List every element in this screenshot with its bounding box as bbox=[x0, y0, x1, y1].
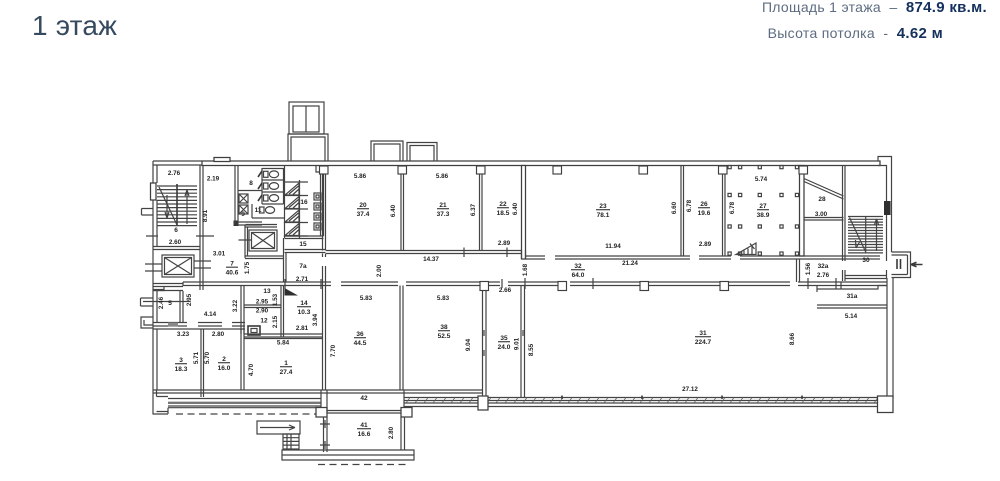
svg-text:16.6: 16.6 bbox=[358, 431, 371, 438]
svg-text:3.01: 3.01 bbox=[213, 251, 226, 258]
svg-text:2.15: 2.15 bbox=[272, 315, 279, 328]
svg-text:32a: 32a bbox=[818, 263, 829, 270]
svg-text:15: 15 bbox=[299, 241, 307, 248]
svg-text:8.91: 8.91 bbox=[202, 209, 209, 222]
svg-text:16: 16 bbox=[300, 199, 308, 206]
svg-text:3.22: 3.22 bbox=[232, 299, 239, 312]
svg-text:2.89: 2.89 bbox=[699, 241, 712, 248]
svg-text:2.19: 2.19 bbox=[207, 176, 220, 183]
svg-text:5: 5 bbox=[168, 300, 172, 307]
svg-text:37.3: 37.3 bbox=[437, 211, 450, 218]
svg-text:2.81: 2.81 bbox=[296, 325, 309, 332]
svg-text:8.66: 8.66 bbox=[789, 332, 796, 345]
svg-text:6.78: 6.78 bbox=[686, 199, 693, 212]
svg-text:38.9: 38.9 bbox=[757, 212, 770, 219]
svg-text:5.86: 5.86 bbox=[354, 173, 367, 180]
svg-text:2.76: 2.76 bbox=[817, 272, 830, 279]
svg-text:8: 8 bbox=[249, 180, 253, 187]
svg-text:5.84: 5.84 bbox=[277, 340, 290, 347]
svg-text:3: 3 bbox=[179, 357, 183, 364]
svg-text:24.0: 24.0 bbox=[498, 344, 511, 351]
svg-text:7a: 7a bbox=[299, 263, 307, 270]
svg-text:21: 21 bbox=[439, 202, 447, 209]
svg-text:13: 13 bbox=[263, 288, 271, 295]
svg-text:4.70: 4.70 bbox=[248, 363, 255, 376]
svg-text:27.4: 27.4 bbox=[280, 369, 293, 376]
svg-text:26: 26 bbox=[700, 201, 708, 208]
svg-text:12: 12 bbox=[260, 318, 268, 325]
svg-text:23: 23 bbox=[599, 203, 607, 210]
svg-text:2.90: 2.90 bbox=[256, 308, 269, 315]
svg-text:2.00: 2.00 bbox=[376, 264, 383, 277]
svg-text:6.37: 6.37 bbox=[470, 203, 477, 216]
svg-text:21.24: 21.24 bbox=[622, 260, 638, 267]
svg-text:30: 30 bbox=[862, 257, 870, 264]
svg-text:2.66: 2.66 bbox=[499, 287, 512, 294]
svg-text:64.0: 64.0 bbox=[572, 272, 585, 279]
svg-text:1.53: 1.53 bbox=[272, 293, 279, 306]
svg-text:6.78: 6.78 bbox=[729, 201, 736, 214]
svg-text:6.40: 6.40 bbox=[390, 204, 397, 217]
svg-text:18.3: 18.3 bbox=[175, 366, 188, 373]
svg-text:2.46: 2.46 bbox=[158, 296, 165, 309]
svg-text:3.00: 3.00 bbox=[815, 211, 828, 218]
svg-text:3.94: 3.94 bbox=[312, 313, 319, 326]
svg-text:44.5: 44.5 bbox=[354, 340, 367, 347]
svg-text:2: 2 bbox=[222, 356, 226, 363]
svg-text:5.83: 5.83 bbox=[360, 295, 373, 302]
svg-text:78.1: 78.1 bbox=[597, 212, 610, 219]
svg-text:3.23: 3.23 bbox=[177, 331, 190, 338]
svg-text:41: 41 bbox=[360, 422, 368, 429]
svg-text:40.6: 40.6 bbox=[226, 270, 239, 277]
svg-text:6.40: 6.40 bbox=[512, 202, 519, 215]
svg-text:2.89: 2.89 bbox=[498, 240, 511, 247]
svg-text:16.0: 16.0 bbox=[218, 365, 231, 372]
svg-text:9.04: 9.04 bbox=[465, 338, 472, 351]
svg-text:1.68: 1.68 bbox=[522, 263, 529, 276]
svg-text:18.5: 18.5 bbox=[497, 210, 510, 217]
svg-text:5.14: 5.14 bbox=[845, 313, 858, 320]
svg-text:19.6: 19.6 bbox=[698, 210, 711, 217]
svg-text:37.4: 37.4 bbox=[357, 211, 370, 218]
svg-text:36: 36 bbox=[356, 331, 364, 338]
svg-text:35: 35 bbox=[500, 335, 508, 342]
svg-text:1: 1 bbox=[284, 360, 288, 367]
svg-text:2.60: 2.60 bbox=[169, 239, 182, 246]
svg-text:5.83: 5.83 bbox=[437, 295, 450, 302]
svg-text:2.71: 2.71 bbox=[296, 276, 309, 283]
svg-text:6: 6 bbox=[174, 227, 178, 234]
svg-text:5.74: 5.74 bbox=[755, 176, 768, 183]
svg-text:224.7: 224.7 bbox=[695, 339, 712, 346]
svg-text:32: 32 bbox=[574, 263, 582, 270]
svg-text:2.80: 2.80 bbox=[388, 426, 395, 439]
svg-text:11.94: 11.94 bbox=[605, 243, 621, 250]
svg-text:5.86: 5.86 bbox=[436, 173, 449, 180]
svg-text:42: 42 bbox=[360, 395, 368, 402]
svg-text:20: 20 bbox=[359, 202, 367, 209]
svg-text:2.76: 2.76 bbox=[168, 170, 181, 177]
svg-text:22: 22 bbox=[499, 201, 507, 208]
svg-text:14: 14 bbox=[300, 300, 308, 307]
svg-text:14.37: 14.37 bbox=[423, 256, 439, 263]
svg-text:7: 7 bbox=[230, 261, 234, 268]
svg-text:10.3: 10.3 bbox=[298, 309, 311, 316]
svg-text:31a: 31a bbox=[847, 293, 858, 300]
svg-text:5.71: 5.71 bbox=[193, 351, 200, 364]
svg-text:2.80: 2.80 bbox=[212, 331, 225, 338]
svg-text:6.60: 6.60 bbox=[671, 201, 678, 214]
svg-text:1.56: 1.56 bbox=[805, 262, 812, 275]
svg-text:4.14: 4.14 bbox=[204, 311, 217, 318]
svg-text:52.5: 52.5 bbox=[438, 333, 451, 340]
svg-text:7.70: 7.70 bbox=[330, 344, 337, 357]
svg-text:5.70: 5.70 bbox=[204, 351, 211, 364]
svg-text:9: 9 bbox=[241, 211, 245, 218]
svg-text:1.75: 1.75 bbox=[244, 261, 251, 274]
svg-text:28: 28 bbox=[818, 196, 826, 203]
svg-text:38: 38 bbox=[440, 324, 448, 331]
svg-text:31: 31 bbox=[699, 330, 707, 337]
svg-text:2.95: 2.95 bbox=[186, 293, 193, 306]
svg-text:8.55: 8.55 bbox=[528, 343, 535, 356]
svg-text:9.01: 9.01 bbox=[514, 337, 521, 350]
svg-text:27.12: 27.12 bbox=[682, 386, 698, 393]
svg-text:27: 27 bbox=[759, 203, 767, 210]
